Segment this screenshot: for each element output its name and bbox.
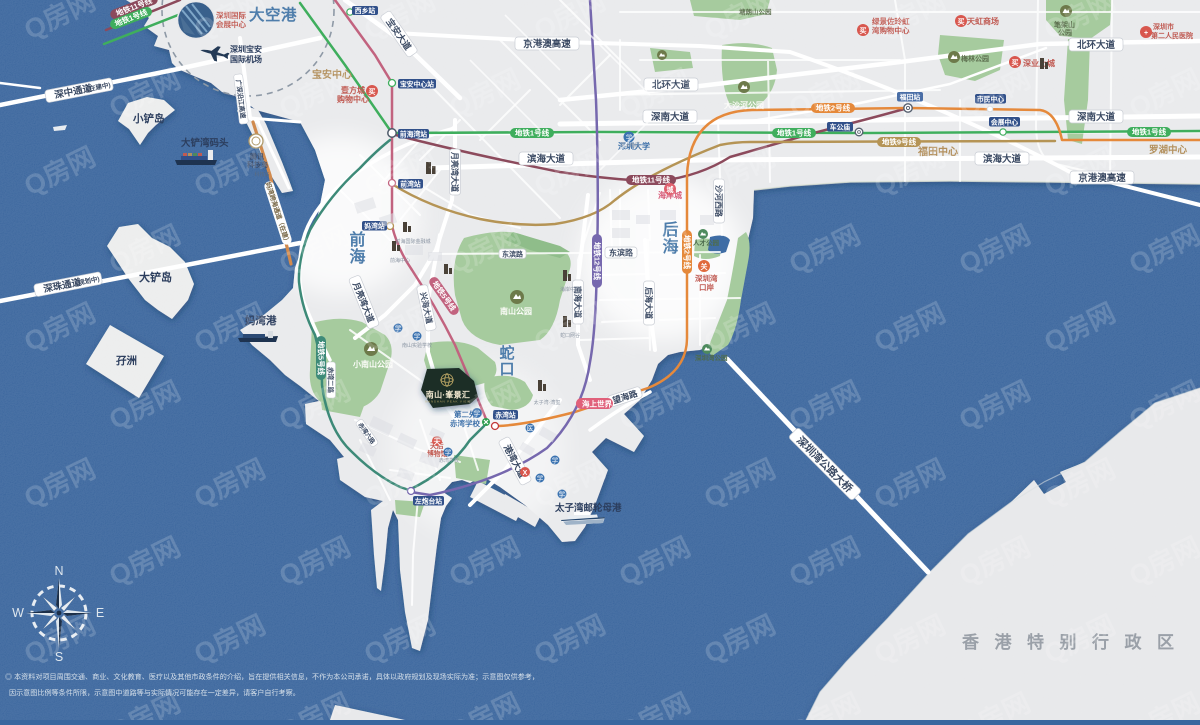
svg-text:+: + [1144, 30, 1148, 37]
svg-text:北环大道: 北环大道 [1077, 39, 1116, 51]
svg-text:口岸: 口岸 [699, 282, 714, 292]
svg-text:太子湾·湾玺: 太子湾·湾玺 [534, 399, 561, 406]
svg-text:E: E [96, 606, 104, 620]
svg-text:地铁11号线: 地铁11号线 [632, 175, 670, 185]
svg-text:车公庙: 车公庙 [830, 123, 851, 132]
svg-text:买: 买 [860, 27, 867, 35]
svg-text:南山·峯景汇: 南山·峯景汇 [426, 390, 470, 400]
svg-text:深圳湾: 深圳湾 [695, 273, 718, 283]
svg-text:南山实验学校: 南山实验学校 [402, 342, 432, 349]
svg-text:国际机场: 国际机场 [230, 54, 262, 64]
svg-text:南山公园: 南山公园 [500, 306, 532, 316]
svg-text:后海大道: 后海大道 [644, 287, 654, 319]
svg-text:深圳市: 深圳市 [1153, 22, 1174, 31]
svg-text:大铲湾码头: 大铲湾码头 [181, 137, 229, 149]
svg-text:天虹商场: 天虹商场 [967, 16, 999, 26]
svg-text:◎ 本资料对项目周围交通、商业、文化教育、医疗以及其他市政条: ◎ 本资料对项目周围交通、商业、文化教育、医疗以及其他市政条件的介绍，旨在提供相… [5, 672, 539, 681]
svg-text:宝安中心站: 宝安中心站 [400, 80, 434, 89]
svg-text:会展中心: 会展中心 [991, 118, 1018, 127]
svg-text:赤湾学校: 赤湾学校 [439, 457, 459, 464]
svg-text:地铁9号线: 地铁9号线 [882, 137, 917, 147]
svg-text:大铲岛: 大铲岛 [139, 270, 172, 284]
svg-text:地铁1号线: 地铁1号线 [515, 128, 550, 138]
svg-text:海上世界: 海上世界 [582, 399, 612, 409]
svg-text:小南山公园: 小南山公园 [352, 359, 393, 369]
svg-text:W: W [12, 606, 24, 620]
svg-text:深圳宝安: 深圳宝安 [230, 44, 262, 54]
svg-text:前海中心: 前海中心 [390, 257, 410, 264]
svg-text:蛇口: 蛇口 [498, 344, 515, 377]
svg-text:关: 关 [701, 262, 708, 271]
svg-text:左炮台站: 左炮台站 [414, 497, 442, 506]
svg-text:地铁1号线: 地铁1号线 [777, 128, 812, 138]
svg-text:孖洲: 孖洲 [116, 355, 137, 367]
svg-text:前海国际金融城: 前海国际金融城 [395, 238, 430, 245]
svg-text:买: 买 [369, 88, 376, 96]
svg-text:大沙河公园: 大沙河公园 [724, 100, 764, 110]
svg-text:城: 城 [667, 185, 674, 194]
svg-text:月亮湾大道: 月亮湾大道 [450, 151, 460, 192]
svg-text:海岸中心: 海岸中心 [560, 286, 580, 293]
svg-text:因示意图比例等条件所限，示意图中道路等与实际情况可能存在一定: 因示意图比例等条件所限，示意图中道路等与实际情况可能存在一定差异，请客户自行考察… [9, 688, 300, 697]
svg-text:前海湾站: 前海湾站 [400, 130, 427, 139]
svg-text:地铁5号线: 地铁5号线 [317, 341, 327, 376]
svg-text:梅林公园: 梅林公园 [961, 54, 989, 63]
svg-text:罗湖中心: 罗湖中心 [1149, 144, 1188, 156]
svg-text:深业上城: 深业上城 [1023, 58, 1055, 68]
svg-text:深南大道: 深南大道 [1077, 111, 1116, 123]
svg-text:学: 学 [445, 448, 452, 457]
svg-text:学: 学 [552, 456, 559, 465]
svg-text:人才公园: 人才公园 [693, 238, 720, 247]
svg-text:福田站: 福田站 [899, 93, 921, 102]
svg-text:买: 买 [958, 18, 965, 26]
svg-text:医: 医 [527, 425, 534, 433]
svg-text:第二人民医院: 第二人民医院 [1151, 31, 1193, 40]
svg-text:滨海大道: 滨海大道 [983, 153, 1022, 165]
svg-text:地铁12号线: 地铁12号线 [593, 242, 603, 281]
svg-text:N: N [54, 564, 63, 578]
svg-text:地铁1号线: 地铁1号线 [1132, 127, 1167, 137]
svg-text:深南大道: 深南大道 [651, 111, 690, 123]
svg-text:X: X [523, 470, 528, 477]
